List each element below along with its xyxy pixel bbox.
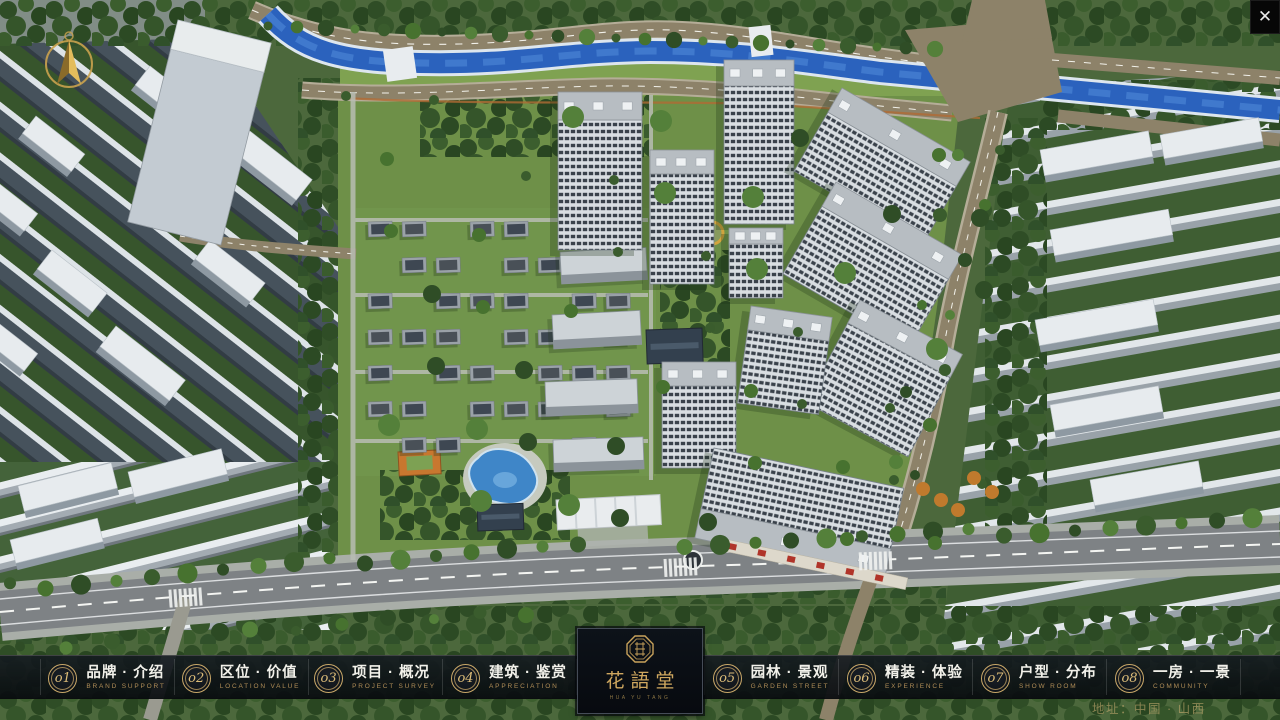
menu-item-floorplans[interactable]: o7 户型 · 分布 SHOW ROOM: [972, 656, 1106, 700]
menu-item-decor-experience[interactable]: o6 精装 · 体验 EXPERIENCE: [838, 656, 972, 700]
menu-divider: [704, 659, 705, 695]
menu-badge: o2: [182, 664, 211, 693]
menu-item-room-view[interactable]: o8 一房 · 一景 COMMUNITY: [1106, 656, 1240, 700]
menu-item-location-value[interactable]: o2 区位 · 价值 LOCATION VALUE: [174, 656, 308, 700]
brand-seal-icon: [626, 635, 654, 663]
menu-divider: [838, 659, 839, 695]
project-name: 花語堂: [599, 666, 680, 693]
menu-badge: o8: [1115, 664, 1144, 693]
menu-badge: o3: [314, 664, 343, 693]
project-address: 地址：中国 · 山西: [1092, 698, 1206, 717]
site-plan-3d-view[interactable]: [0, 0, 1280, 720]
menu-badge: o4: [451, 664, 480, 693]
menu-divider: [1240, 659, 1241, 695]
menu-item-brand-intro[interactable]: o1 品牌 · 介绍 BRAND SUPPORT: [40, 656, 174, 700]
menu-item-architecture[interactable]: o4 建筑 · 鉴赏 APPRECIATION: [442, 656, 576, 700]
menu-item-project-overview[interactable]: o3 项目 · 概况 PROJECT SURVEY: [308, 656, 442, 700]
menu-badge: o7: [981, 664, 1010, 693]
menu-divider: [972, 659, 973, 695]
menu-divider: [308, 659, 309, 695]
menu-divider: [1106, 659, 1107, 695]
project-name-latin: HUA YU TANG: [610, 695, 671, 701]
menu-divider: [40, 659, 41, 695]
close-button[interactable]: ✕: [1250, 0, 1280, 34]
compass-icon: [40, 28, 98, 94]
clubhouse: [646, 328, 703, 364]
menu-item-garden-landscape[interactable]: o5 园林 · 景观 GARDEN STREET: [704, 656, 838, 700]
menu-divider: [174, 659, 175, 695]
menu-badge: o1: [48, 664, 77, 693]
sales-presentation-screen: ✕ o1 品牌 · 介绍 BRAND SUPPORT o2 区位 · 价值 LO…: [0, 0, 1280, 720]
menu-divider: [442, 659, 443, 695]
menu-badge: o6: [847, 664, 876, 693]
menu-badge: o5: [713, 664, 742, 693]
project-logo-panel[interactable]: 花語堂 HUA YU TANG: [577, 628, 703, 714]
